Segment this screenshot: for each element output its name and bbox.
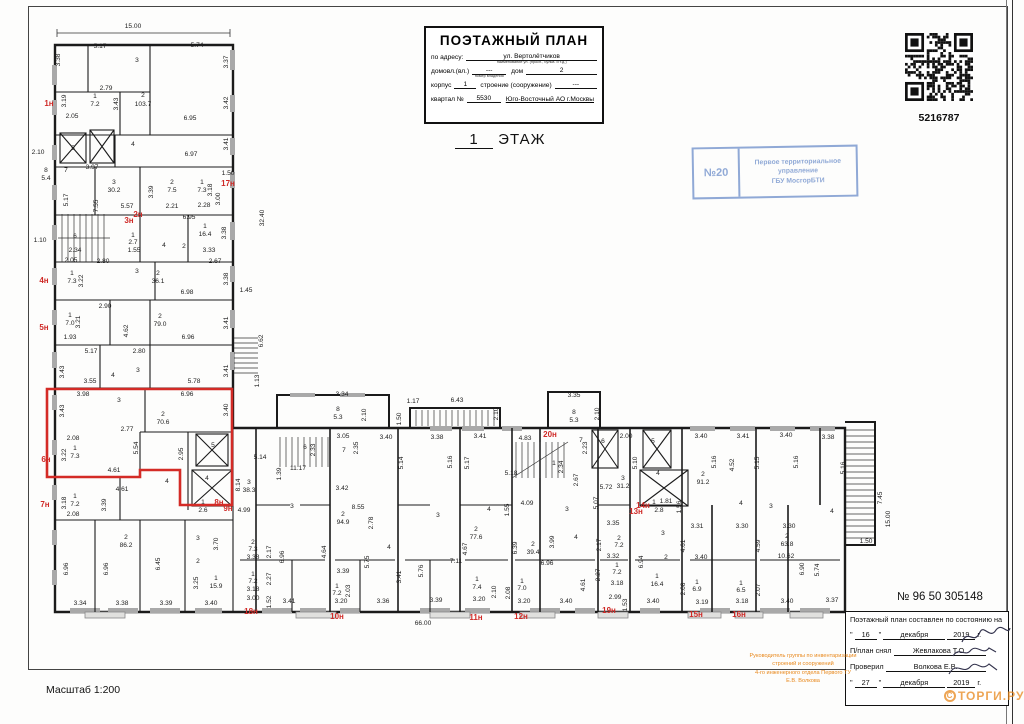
svg-text:3.39: 3.39 bbox=[101, 498, 108, 511]
svg-text:3.98: 3.98 bbox=[77, 391, 90, 398]
svg-text:1.50: 1.50 bbox=[860, 538, 873, 545]
svg-text:6.98: 6.98 bbox=[181, 289, 194, 296]
cert-date2: " 27 " декабря 2019 г. bbox=[850, 678, 1004, 688]
svg-text:6: 6 bbox=[73, 233, 77, 240]
surveyor-name: Жевлакова Т.О. bbox=[894, 646, 986, 656]
svg-text:2.80: 2.80 bbox=[133, 348, 146, 355]
svg-text:2.7: 2.7 bbox=[128, 239, 137, 246]
svg-text:4: 4 bbox=[162, 242, 166, 249]
svg-text:5.14: 5.14 bbox=[254, 454, 267, 461]
svg-text:7.2: 7.2 bbox=[70, 501, 79, 508]
svg-text:3.38: 3.38 bbox=[431, 434, 444, 441]
svg-text:3.31: 3.31 bbox=[691, 523, 704, 530]
svg-text:2.08: 2.08 bbox=[680, 582, 687, 595]
svg-text:3.40: 3.40 bbox=[223, 403, 230, 416]
svg-text:3.39: 3.39 bbox=[430, 597, 443, 604]
svg-text:7н: 7н bbox=[40, 500, 49, 509]
svg-text:6.95: 6.95 bbox=[184, 115, 197, 122]
svg-text:3.32: 3.32 bbox=[607, 553, 620, 560]
svg-text:36.1: 36.1 bbox=[152, 278, 165, 285]
svg-text:5.76: 5.76 bbox=[418, 564, 425, 577]
svg-text:3.30: 3.30 bbox=[736, 523, 749, 530]
svg-text:6.94: 6.94 bbox=[638, 555, 645, 568]
svg-text:6.96: 6.96 bbox=[279, 550, 286, 563]
svg-text:3.40: 3.40 bbox=[695, 433, 708, 440]
svg-text:3.38: 3.38 bbox=[247, 554, 260, 561]
svg-text:8: 8 bbox=[44, 167, 48, 174]
svg-text:5.16: 5.16 bbox=[840, 461, 847, 474]
floor-number: 1 bbox=[455, 131, 493, 149]
title-block: ПОЭТАЖНЫЙ ПЛАН по адресу: ул. Вертолётчи… bbox=[424, 26, 604, 124]
svg-text:2.03: 2.03 bbox=[345, 584, 352, 597]
svg-text:6н: 6н bbox=[41, 455, 50, 464]
svg-text:3.19: 3.19 bbox=[61, 94, 68, 107]
svg-text:4.61: 4.61 bbox=[680, 539, 687, 552]
svg-text:3: 3 bbox=[565, 506, 569, 513]
svg-text:6.45: 6.45 bbox=[155, 557, 162, 570]
svg-text:9н: 9н bbox=[223, 504, 232, 513]
svg-text:3.00: 3.00 bbox=[247, 595, 260, 602]
svg-text:4.61: 4.61 bbox=[580, 578, 587, 591]
svg-text:1.53: 1.53 bbox=[622, 598, 629, 611]
svg-text:1.17: 1.17 bbox=[407, 398, 420, 405]
svg-text:63.8: 63.8 bbox=[781, 541, 794, 548]
cert-date2-month: декабря bbox=[883, 678, 945, 688]
svg-text:1: 1 bbox=[70, 270, 74, 277]
svg-text:1: 1 bbox=[68, 312, 72, 319]
cert-surveyor: П/план снял Жевлакова Т.О. bbox=[850, 646, 1004, 656]
svg-text:4: 4 bbox=[656, 470, 660, 477]
svg-text:3.42: 3.42 bbox=[336, 485, 349, 492]
svg-text:3.37: 3.37 bbox=[826, 597, 839, 604]
svg-text:2.08: 2.08 bbox=[67, 511, 80, 518]
svg-text:91.2: 91.2 bbox=[697, 479, 710, 486]
svg-text:2.10: 2.10 bbox=[493, 407, 500, 420]
svg-text:2.79: 2.79 bbox=[100, 85, 113, 92]
svg-text:2.67: 2.67 bbox=[209, 258, 222, 265]
svg-text:4.61: 4.61 bbox=[108, 467, 121, 474]
svg-text:4.83: 4.83 bbox=[519, 435, 532, 442]
svg-text:5.16: 5.16 bbox=[793, 455, 800, 468]
svg-text:3.40: 3.40 bbox=[205, 600, 218, 607]
svg-text:2: 2 bbox=[664, 554, 668, 561]
svg-text:2.23: 2.23 bbox=[582, 441, 589, 454]
svg-text:12н: 12н bbox=[514, 612, 528, 621]
svg-text:18н: 18н bbox=[244, 607, 258, 616]
svg-text:7.4: 7.4 bbox=[472, 584, 481, 591]
svg-text:2.10: 2.10 bbox=[32, 149, 45, 156]
svg-text:1.10: 1.10 bbox=[34, 237, 47, 244]
svg-text:5.17: 5.17 bbox=[63, 193, 70, 206]
svg-text:3: 3 bbox=[247, 479, 251, 486]
cert-date2-suffix: г. bbox=[977, 678, 981, 687]
svg-text:7.5: 7.5 bbox=[167, 187, 176, 194]
svg-text:1н: 1н bbox=[44, 99, 53, 108]
svg-text:1.55: 1.55 bbox=[504, 503, 511, 516]
svg-text:15н: 15н bbox=[689, 610, 703, 619]
bti-stamp: №20 Первое территориальное управление ГБ… bbox=[692, 145, 859, 200]
qr-block: 5216787 bbox=[903, 33, 975, 124]
quarter-label: квартал № bbox=[431, 96, 464, 103]
svg-text:7.3: 7.3 bbox=[197, 187, 206, 194]
svg-text:4: 4 bbox=[165, 478, 169, 485]
svg-text:1: 1 bbox=[335, 583, 339, 590]
ownership-row: домовл.(вл.) --- номер владения дом 2 bbox=[431, 67, 597, 75]
svg-text:11.17: 11.17 bbox=[290, 465, 306, 472]
svg-text:5.74: 5.74 bbox=[191, 42, 204, 49]
svg-text:1.81: 1.81 bbox=[660, 498, 673, 505]
svg-text:5.14: 5.14 bbox=[398, 456, 405, 469]
svg-text:15.00: 15.00 bbox=[125, 23, 142, 30]
svg-text:3.18: 3.18 bbox=[736, 598, 749, 605]
svg-text:1: 1 bbox=[200, 179, 204, 186]
svg-text:3.43: 3.43 bbox=[59, 365, 66, 378]
svg-text:3.18: 3.18 bbox=[207, 183, 214, 196]
svg-text:5: 5 bbox=[71, 145, 75, 152]
svg-text:3: 3 bbox=[290, 503, 294, 510]
svg-text:8: 8 bbox=[572, 409, 576, 416]
svg-text:3.34: 3.34 bbox=[336, 391, 349, 398]
svg-text:2.10: 2.10 bbox=[594, 407, 601, 420]
svg-text:4: 4 bbox=[387, 544, 391, 551]
svg-text:5: 5 bbox=[211, 442, 215, 449]
svg-text:31.2: 31.2 bbox=[617, 483, 630, 490]
svg-text:20н: 20н bbox=[543, 430, 557, 439]
svg-text:3.41: 3.41 bbox=[474, 433, 487, 440]
svg-text:3.18: 3.18 bbox=[61, 496, 68, 509]
stamp-number: №20 bbox=[694, 149, 741, 198]
svg-text:3.22: 3.22 bbox=[78, 274, 85, 287]
svg-text:2.28: 2.28 bbox=[198, 202, 211, 209]
svg-text:3.41: 3.41 bbox=[223, 316, 230, 329]
svg-text:10н: 10н bbox=[330, 612, 344, 621]
svg-text:6.90: 6.90 bbox=[799, 562, 806, 575]
svg-text:5.17: 5.17 bbox=[85, 348, 98, 355]
svg-text:1: 1 bbox=[203, 223, 207, 230]
svg-text:4: 4 bbox=[574, 534, 578, 541]
svg-text:1.55: 1.55 bbox=[128, 247, 141, 254]
svg-text:6.9: 6.9 bbox=[692, 586, 701, 593]
svg-text:3.22: 3.22 bbox=[61, 448, 68, 461]
svg-text:7.2: 7.2 bbox=[614, 542, 623, 549]
svg-text:6.96: 6.96 bbox=[541, 560, 554, 567]
svg-text:3.39: 3.39 bbox=[160, 600, 173, 607]
svg-text:1: 1 bbox=[131, 232, 135, 239]
svg-text:1: 1 bbox=[73, 493, 77, 500]
svg-text:2.07: 2.07 bbox=[755, 583, 762, 596]
cert-header: Поэтажный план составлен по состоянию на bbox=[850, 615, 1004, 624]
svg-text:103.7: 103.7 bbox=[135, 101, 152, 108]
svg-text:2.17: 2.17 bbox=[596, 538, 603, 551]
svg-text:3: 3 bbox=[135, 268, 139, 275]
svg-text:2.99: 2.99 bbox=[609, 594, 622, 601]
svg-text:66.00: 66.00 bbox=[415, 620, 432, 627]
svg-text:5.3: 5.3 bbox=[333, 414, 342, 421]
svg-text:7.11: 7.11 bbox=[450, 558, 463, 565]
svg-text:39.4: 39.4 bbox=[527, 549, 540, 556]
svg-text:5.57: 5.57 bbox=[121, 203, 134, 210]
quarter-row: квартал № 5530 Юго-Восточный АО г.Москвы bbox=[431, 95, 597, 103]
svg-text:4: 4 bbox=[739, 500, 743, 507]
svg-text:3.40: 3.40 bbox=[647, 598, 660, 605]
svg-text:4.59: 4.59 bbox=[755, 539, 762, 552]
house-label: дом bbox=[511, 68, 523, 75]
svg-text:2.8: 2.8 bbox=[654, 507, 663, 514]
svg-text:2: 2 bbox=[170, 179, 174, 186]
svg-text:3.99: 3.99 bbox=[549, 535, 556, 548]
svg-text:7.0: 7.0 bbox=[65, 320, 74, 327]
building-label: корпус bbox=[431, 82, 451, 89]
svg-text:7.2: 7.2 bbox=[248, 578, 257, 585]
svg-text:3: 3 bbox=[135, 57, 139, 64]
svg-text:6.96: 6.96 bbox=[63, 562, 70, 575]
watermark-text: ТОРГИ.РУ bbox=[958, 689, 1024, 703]
scanned-floor-plan-page: 15.005.173.3835.743.372.793.1917.22.053.… bbox=[0, 0, 1024, 724]
svg-text:1.93: 1.93 bbox=[64, 334, 77, 341]
svg-text:2.08: 2.08 bbox=[67, 435, 80, 442]
svg-text:7.3: 7.3 bbox=[67, 278, 76, 285]
svg-text:1: 1 bbox=[251, 571, 255, 578]
svg-text:5.54: 5.54 bbox=[133, 441, 140, 454]
svg-text:3.41: 3.41 bbox=[396, 570, 403, 583]
svg-text:3.41: 3.41 bbox=[283, 598, 296, 605]
svg-text:30.2: 30.2 bbox=[108, 187, 121, 194]
svg-text:3.42: 3.42 bbox=[223, 96, 230, 109]
svg-text:19н: 19н bbox=[602, 606, 616, 615]
svg-text:2.90: 2.90 bbox=[99, 303, 112, 310]
svg-text:8.14: 8.14 bbox=[235, 478, 242, 491]
svg-text:86.2: 86.2 bbox=[120, 542, 133, 549]
svg-text:16.4: 16.4 bbox=[651, 581, 664, 588]
svg-text:2.05: 2.05 bbox=[65, 257, 78, 264]
svg-text:3.40: 3.40 bbox=[695, 554, 708, 561]
svg-text:3.40: 3.40 bbox=[780, 432, 793, 439]
svg-text:2.17: 2.17 bbox=[266, 545, 273, 558]
svg-text:2.00: 2.00 bbox=[620, 433, 633, 440]
svg-text:70.6: 70.6 bbox=[157, 419, 170, 426]
svg-text:3.40: 3.40 bbox=[560, 598, 573, 605]
svg-text:1: 1 bbox=[615, 562, 619, 569]
stamp-text: Первое территориальное управление ГБУ Мо… bbox=[740, 147, 857, 197]
svg-text:4.61: 4.61 bbox=[116, 486, 129, 493]
cert-date2-year: 2019 bbox=[947, 678, 975, 688]
svg-text:5.17: 5.17 bbox=[94, 43, 107, 50]
svg-text:7.3: 7.3 bbox=[248, 546, 257, 553]
svg-text:2: 2 bbox=[156, 270, 160, 277]
svg-text:5.16: 5.16 bbox=[447, 455, 454, 468]
svg-text:3: 3 bbox=[196, 535, 200, 542]
svg-text:3.33: 3.33 bbox=[203, 247, 216, 254]
building-row: корпус 1 строение (сооружение) --- bbox=[431, 81, 597, 89]
svg-text:3: 3 bbox=[136, 367, 140, 374]
cert-date1: " 16 " декабря 2019 г. bbox=[850, 630, 1004, 640]
svg-text:1.13: 1.13 bbox=[254, 374, 261, 387]
svg-text:2.35: 2.35 bbox=[353, 441, 360, 454]
address-value: ул. Вертолётчиков наименование ул. (прос… bbox=[466, 53, 597, 61]
svg-text:7.0: 7.0 bbox=[517, 585, 526, 592]
svg-text:6: 6 bbox=[601, 438, 605, 445]
approver-block: Руководитель группы по инвентаризации ст… bbox=[740, 652, 866, 686]
svg-text:2: 2 bbox=[161, 411, 165, 418]
house-value: 2 bbox=[526, 67, 597, 75]
cert-date1-year: 2019 bbox=[947, 630, 975, 640]
svg-text:6.95: 6.95 bbox=[183, 214, 196, 221]
svg-text:16.4: 16.4 bbox=[199, 231, 212, 238]
cert-checker: Проверил Волкова Е.В. bbox=[850, 662, 1004, 672]
svg-text:2.10: 2.10 bbox=[361, 408, 368, 421]
svg-text:1.50: 1.50 bbox=[396, 412, 403, 425]
svg-text:4.52: 4.52 bbox=[729, 458, 736, 471]
svg-text:3.18: 3.18 bbox=[611, 580, 624, 587]
svg-text:3: 3 bbox=[117, 397, 121, 404]
svg-text:2: 2 bbox=[141, 92, 145, 99]
cert-date1-day: 16 bbox=[855, 630, 877, 640]
svg-text:3: 3 bbox=[436, 512, 440, 519]
svg-text:4: 4 bbox=[205, 475, 209, 482]
svg-text:3.21: 3.21 bbox=[75, 315, 82, 328]
svg-text:3.39: 3.39 bbox=[148, 185, 155, 198]
cert-date1-month: декабря bbox=[883, 630, 945, 640]
svg-text:6.96: 6.96 bbox=[103, 562, 110, 575]
svg-text:5.18: 5.18 bbox=[505, 470, 518, 477]
ownership-sublabel: номер владения bbox=[472, 75, 506, 79]
svg-text:6.62: 6.62 bbox=[258, 334, 265, 347]
svg-text:2: 2 bbox=[196, 558, 200, 565]
svg-text:1: 1 bbox=[552, 460, 556, 467]
svg-text:5: 5 bbox=[651, 438, 655, 445]
svg-text:6.97: 6.97 bbox=[185, 151, 198, 158]
svg-text:3.36: 3.36 bbox=[377, 598, 390, 605]
svg-text:4: 4 bbox=[131, 141, 135, 148]
svg-text:8.55: 8.55 bbox=[352, 504, 365, 511]
svg-text:5.75: 5.75 bbox=[364, 555, 371, 568]
svg-text:2: 2 bbox=[531, 541, 535, 548]
quarter-value: 5530 bbox=[467, 95, 501, 103]
svg-text:3.38: 3.38 bbox=[223, 272, 230, 285]
svg-text:7.2: 7.2 bbox=[332, 590, 341, 597]
svg-text:1: 1 bbox=[214, 575, 218, 582]
svg-text:3.38: 3.38 bbox=[55, 53, 62, 66]
svg-text:7.3: 7.3 bbox=[70, 453, 79, 460]
svg-text:13н: 13н bbox=[629, 507, 643, 516]
svg-text:7: 7 bbox=[64, 167, 68, 174]
svg-text:2н: 2н bbox=[133, 210, 142, 219]
svg-text:3.43: 3.43 bbox=[59, 404, 66, 417]
svg-text:3.70: 3.70 bbox=[213, 537, 220, 550]
approver-line1: Руководитель группы по инвентаризации bbox=[740, 652, 866, 660]
svg-text:5.4: 5.4 bbox=[41, 175, 50, 182]
svg-text:3.39: 3.39 bbox=[337, 568, 350, 575]
svg-text:3.34: 3.34 bbox=[74, 600, 87, 607]
svg-text:7.2: 7.2 bbox=[612, 569, 621, 576]
svg-text:4.62: 4.62 bbox=[123, 324, 130, 337]
svg-text:5.10: 5.10 bbox=[632, 456, 639, 469]
svg-text:2.10: 2.10 bbox=[491, 585, 498, 598]
svg-text:2: 2 bbox=[474, 526, 478, 533]
address-sublabel: наименование ул. (просп., бульв. и т.д.) bbox=[466, 61, 597, 65]
structure-label: строение (сооружение) bbox=[480, 82, 551, 89]
svg-text:5.17: 5.17 bbox=[464, 456, 471, 469]
document-number: № 96 50 305148 bbox=[870, 591, 1010, 603]
svg-text:5.78: 5.78 bbox=[188, 378, 201, 385]
svg-text:4.09: 4.09 bbox=[521, 500, 534, 507]
svg-text:94.9: 94.9 bbox=[337, 519, 350, 526]
qr-code bbox=[905, 33, 973, 101]
address-label: по адресу: bbox=[431, 54, 463, 61]
svg-text:4: 4 bbox=[111, 372, 115, 379]
svg-text:5.74: 5.74 bbox=[814, 563, 821, 576]
svg-text:3.38: 3.38 bbox=[221, 226, 228, 239]
svg-text:3: 3 bbox=[112, 179, 116, 186]
svg-text:2: 2 bbox=[617, 535, 621, 542]
svg-text:5.3: 5.3 bbox=[569, 417, 578, 424]
svg-text:2: 2 bbox=[158, 313, 162, 320]
stamp-line3: ГБУ МосгорБТИ bbox=[772, 176, 825, 186]
svg-text:1: 1 bbox=[73, 445, 77, 452]
svg-text:5.72: 5.72 bbox=[600, 484, 613, 491]
svg-text:1: 1 bbox=[93, 93, 97, 100]
svg-text:2: 2 bbox=[341, 511, 345, 518]
svg-text:1.56: 1.56 bbox=[676, 500, 683, 513]
svg-text:4: 4 bbox=[830, 508, 834, 515]
inner-walls bbox=[55, 45, 840, 612]
svg-text:7.2: 7.2 bbox=[90, 101, 99, 108]
svg-text:1.52: 1.52 bbox=[266, 595, 273, 608]
svg-text:11н: 11н bbox=[469, 613, 482, 622]
svg-text:1.50: 1.50 bbox=[222, 170, 235, 177]
scale-label: Масштаб 1:200 bbox=[46, 684, 120, 696]
svg-text:3.20: 3.20 bbox=[518, 598, 531, 605]
svg-text:3.35: 3.35 bbox=[607, 520, 620, 527]
svg-text:3.38: 3.38 bbox=[822, 434, 835, 441]
address-row: по адресу: ул. Вертолётчиков наименовани… bbox=[431, 53, 597, 61]
svg-text:1: 1 bbox=[652, 499, 656, 506]
floor-heading: 1 ЭТАЖ bbox=[455, 131, 545, 149]
svg-text:3.40: 3.40 bbox=[781, 598, 794, 605]
svg-text:2.21: 2.21 bbox=[166, 203, 179, 210]
svg-text:3.19: 3.19 bbox=[696, 599, 709, 606]
svg-text:2: 2 bbox=[182, 243, 186, 250]
svg-text:1: 1 bbox=[520, 578, 524, 585]
svg-text:3: 3 bbox=[621, 475, 625, 482]
svg-text:6.39: 6.39 bbox=[512, 541, 519, 554]
svg-text:2: 2 bbox=[701, 471, 705, 478]
svg-text:79.0: 79.0 bbox=[154, 321, 167, 328]
svg-text:5.16: 5.16 bbox=[711, 455, 718, 468]
svg-text:6: 6 bbox=[303, 444, 307, 451]
svg-text:1: 1 bbox=[695, 579, 699, 586]
svg-text:15.9: 15.9 bbox=[210, 583, 223, 590]
svg-text:32.40: 32.40 bbox=[259, 209, 266, 226]
svg-text:2: 2 bbox=[124, 534, 128, 541]
svg-text:3.20: 3.20 bbox=[335, 598, 348, 605]
svg-text:2.05: 2.05 bbox=[66, 113, 79, 120]
checker-name: Волкова Е.В. bbox=[886, 662, 986, 672]
structure-value: --- bbox=[555, 81, 597, 89]
svg-text:3н: 3н bbox=[124, 216, 133, 225]
svg-text:6.5: 6.5 bbox=[736, 587, 745, 594]
approver-line3: 4-го инженерного отдела Первого ТУ bbox=[740, 669, 866, 677]
title-block-title: ПОЭТАЖНЫЙ ПЛАН bbox=[431, 33, 597, 48]
svg-text:4.67: 4.67 bbox=[462, 542, 469, 555]
svg-text:3: 3 bbox=[769, 503, 773, 510]
svg-text:2.67: 2.67 bbox=[573, 473, 580, 486]
svg-text:8: 8 bbox=[336, 406, 340, 413]
svg-text:6.43: 6.43 bbox=[451, 397, 464, 404]
svg-text:3.40: 3.40 bbox=[380, 434, 393, 441]
svg-text:2.80: 2.80 bbox=[97, 258, 110, 265]
svg-text:3.41: 3.41 bbox=[223, 137, 230, 150]
